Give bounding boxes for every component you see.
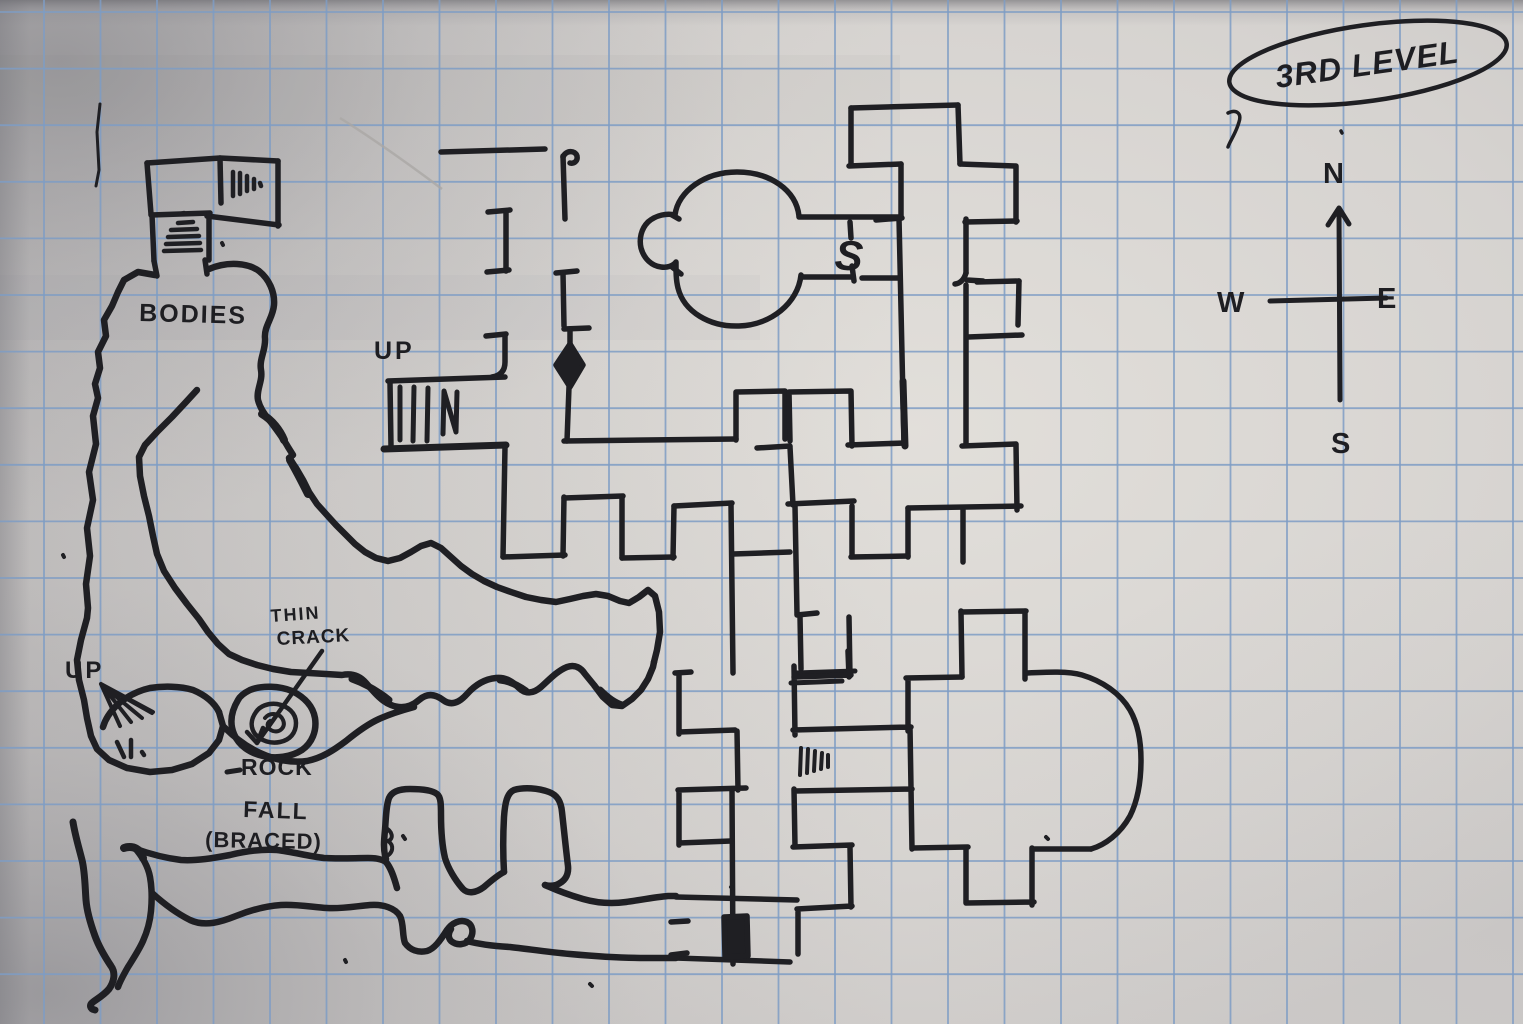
svg-text:BODIES: BODIES [139, 299, 248, 330]
svg-text:N: N [1323, 158, 1344, 190]
svg-text:THIN: THIN [270, 603, 321, 626]
svg-text:ROCK: ROCK [241, 754, 313, 780]
svg-text:UP: UP [65, 657, 104, 684]
svg-text:CRACK: CRACK [276, 625, 351, 650]
svg-text:UP: UP [374, 337, 415, 365]
svg-text:S: S [1331, 428, 1350, 460]
svg-text:E: E [1377, 283, 1396, 315]
svg-text:W: W [1217, 287, 1245, 319]
svg-text:S: S [833, 231, 864, 280]
svg-text:(BRACED): (BRACED) [205, 827, 322, 854]
svg-text:FALL: FALL [243, 796, 309, 824]
